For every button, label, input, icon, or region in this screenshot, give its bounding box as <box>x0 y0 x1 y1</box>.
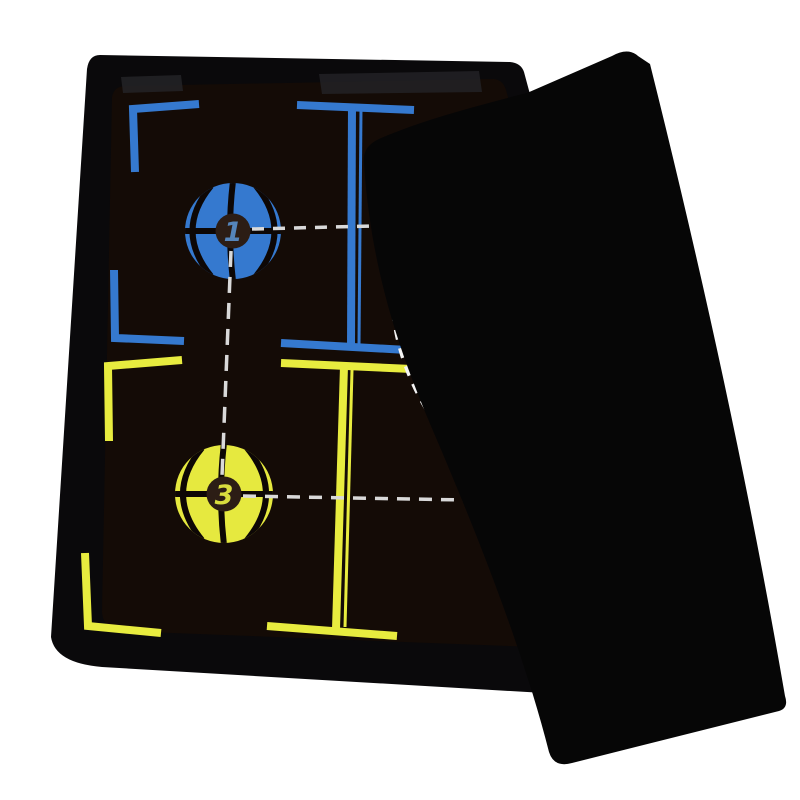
marker-3-number: 3 <box>215 480 234 511</box>
blue-lane-line <box>351 104 352 347</box>
tactic-board-scene: 1 3 <box>0 0 800 800</box>
clip-mark-left <box>121 75 183 93</box>
clip-mark-right <box>319 71 482 94</box>
marker-1-number: 1 <box>224 217 243 248</box>
product-photo: 1 3 <box>0 0 800 800</box>
